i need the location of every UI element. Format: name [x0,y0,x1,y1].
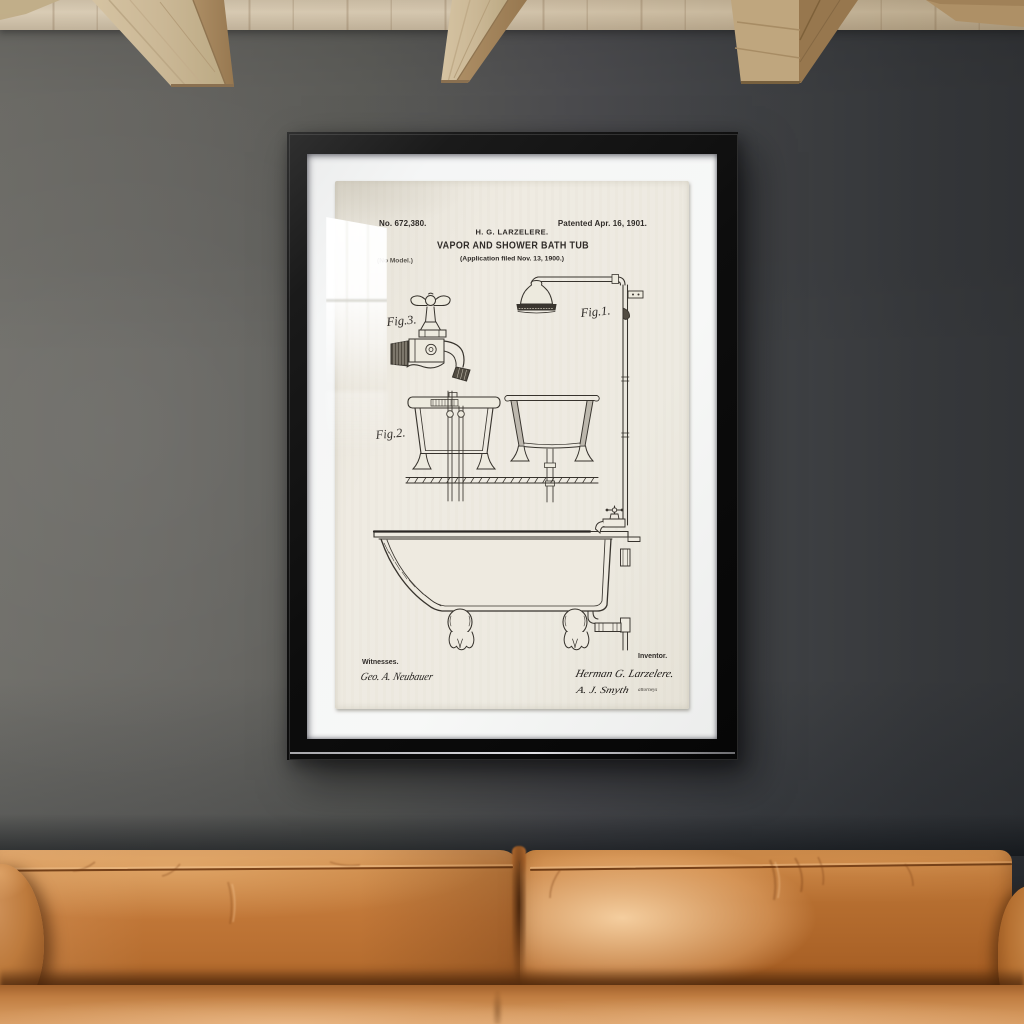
svg-text:Fig.1.: Fig.1. [579,303,611,320]
svg-text:(Application filed Nov. 13, 19: (Application filed Nov. 13, 1900.) [460,256,564,263]
svg-text:Witnesses.: Witnesses. [362,659,399,666]
svg-text:Inventor.: Inventor. [638,653,667,660]
svg-text:attorneys: attorneys [638,687,657,693]
svg-text:Patented Apr. 16, 1901.: Patented Apr. 16, 1901. [558,219,647,228]
svg-text:A. J. Smyth: A. J. Smyth [574,685,630,696]
svg-text:VAPOR AND SHOWER BATH TUB: VAPOR AND SHOWER BATH TUB [437,240,589,252]
svg-text:No. 672,380.: No. 672,380. [379,219,426,228]
svg-text:H. G. LARZELERE.: H. G. LARZELERE. [475,228,548,237]
svg-text:Herman G. Larzelere.: Herman G. Larzelere. [573,668,675,680]
svg-text:Fig.3.: Fig.3. [385,312,417,329]
svg-text:Geo. A. Neubauer: Geo. A. Neubauer [359,671,435,683]
